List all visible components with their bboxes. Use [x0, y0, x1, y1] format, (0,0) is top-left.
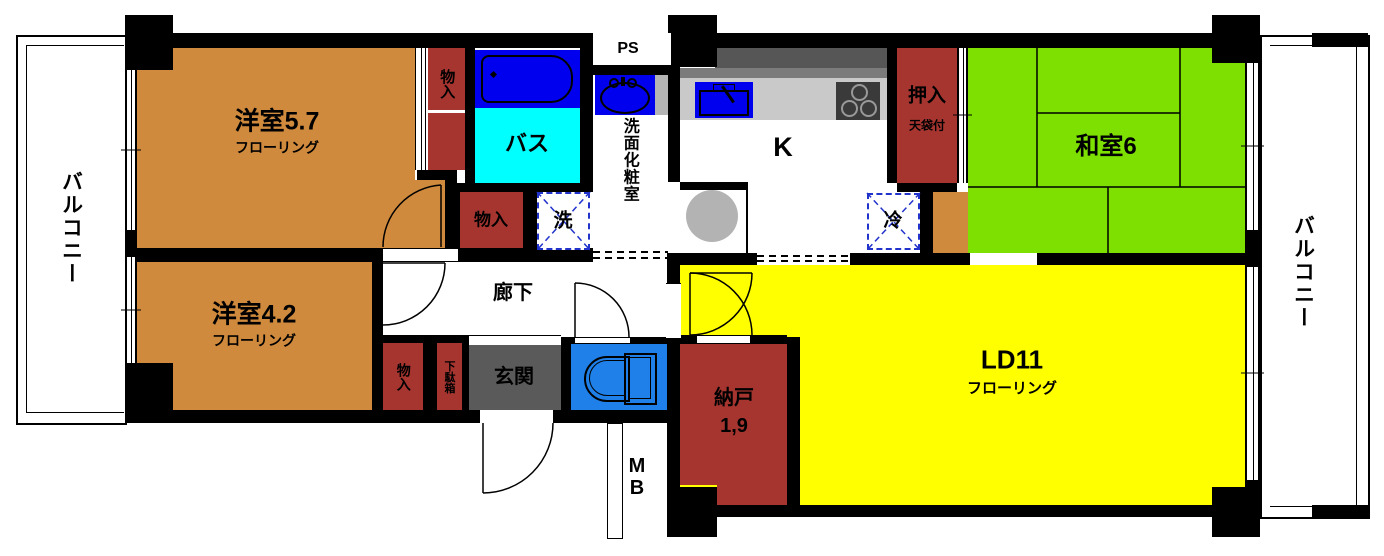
pipe-space-label: PS: [617, 40, 638, 58]
ld-name: LD11: [981, 346, 1043, 375]
closet-door-room57: [415, 48, 426, 170]
balcony-right-label: バルコニー: [1291, 215, 1314, 330]
toilet-icon: [571, 344, 667, 410]
oshiire-sub: 天袋付: [909, 119, 945, 132]
washitsu-name: 和室6: [1075, 134, 1136, 160]
bath-label: バス: [505, 132, 549, 156]
door-opening-room57: [445, 249, 458, 261]
genkan-step: [469, 335, 561, 345]
window-room42: [125, 257, 137, 363]
door-symbol-hall-ld: [666, 283, 681, 339]
wall-washroom-kitchen: [668, 48, 680, 182]
wall-right-seg2: [1245, 230, 1260, 267]
wall-right-seg1: [1245, 48, 1260, 63]
closet-oshiire: [897, 48, 957, 183]
oshiire-name: 押入: [908, 87, 946, 108]
wall-getabako-genkan-divider: [462, 343, 469, 410]
balcony-left-label: バルコニー: [59, 171, 82, 286]
wall-monoire-getabako-divider: [423, 343, 437, 410]
range-hood: [715, 47, 887, 68]
hallway-label: 廊下: [493, 282, 533, 304]
monoire-mid-label: 物入: [474, 212, 508, 231]
monoire-entrance-label: 物入: [395, 363, 410, 391]
washer-label: 洗: [553, 212, 572, 233]
bathtub-icon: [475, 50, 580, 108]
window-room57: [125, 70, 137, 230]
meter-box-wall: [607, 423, 623, 539]
wall-washroom-north: [590, 65, 668, 75]
wall-hall-ld-seg1: [667, 253, 680, 283]
monoire-top-label: 物入: [438, 69, 455, 99]
wall-nando-east: [787, 337, 800, 505]
wall-bath-south: [452, 183, 593, 192]
floor-plan: バルコニー バルコニー 洋室5.7 フローリング 洋室4.2 フローリング 和室…: [0, 0, 1384, 556]
basin-side-counter: [655, 75, 668, 115]
wall-hallway-north: [125, 248, 593, 262]
wall-right-seg3: [1245, 480, 1260, 490]
window-ld: [1245, 267, 1260, 480]
room42-floor: フローリング: [212, 333, 296, 348]
fridge-label: 冷: [883, 212, 902, 233]
door-arc-entrance: [483, 423, 553, 493]
wall-fridge-east: [920, 183, 933, 253]
toko-board: [933, 192, 968, 253]
wall-k-ld-seg1: [680, 253, 757, 265]
kitchen-label: K: [773, 133, 793, 163]
washbasin-icon: [595, 75, 655, 115]
room42-name: 洋室4.2: [212, 301, 297, 329]
room-nando-foot: [717, 485, 787, 506]
door-opening-toilet: [575, 338, 630, 343]
closet-monoire-top-b: [428, 113, 465, 170]
door-arc-toilet: [575, 283, 629, 337]
room-yoshitsu-5-7-ext: [415, 180, 445, 248]
wall-left-seg1: [125, 48, 137, 70]
door-opening-nando: [697, 336, 750, 343]
wall-bottom-west: [125, 410, 480, 423]
nando-name: 納戸: [714, 387, 754, 409]
wall-k-ld-seg2: [850, 253, 970, 265]
counter-edge: [677, 68, 887, 78]
wall-counter-east: [887, 48, 897, 183]
wall-bath-west: [465, 48, 475, 183]
wall-heater-north: [680, 182, 748, 190]
nando-size: 1,9: [720, 415, 748, 437]
stove-icon: [836, 82, 880, 120]
door-opening-room42: [383, 249, 445, 261]
wall-genkan-toilet-divider: [561, 337, 571, 411]
fusuma-oshiire: [957, 48, 968, 183]
wall-hall-ld-seg2: [667, 337, 680, 537]
ld-floor: フローリング: [967, 381, 1057, 398]
wall-bottom-center: [553, 410, 680, 423]
kitchen-sink-icon: [695, 82, 753, 118]
wall-monoire-entrance-north: [383, 335, 469, 343]
water-heater-icon: [686, 190, 738, 242]
wall-hallway-west: [372, 248, 383, 412]
balcony-right-cap-bottom: [1312, 505, 1368, 519]
wall-washitsu-ld: [1037, 253, 1245, 265]
wall-bottom-ld: [680, 505, 1245, 517]
getabako-label: 下駄箱: [443, 361, 455, 394]
wall-monoire-mid-west: [452, 192, 460, 250]
balcony-right-cap-top: [1312, 33, 1368, 47]
wall-heater-east-line: [746, 185, 748, 253]
window-washitsu: [1245, 63, 1260, 230]
wall-top-right: [668, 33, 1260, 48]
washroom-label: 洗面化粧室: [620, 118, 638, 203]
meter-box-label: MB: [626, 455, 648, 499]
room57-floor: フローリング: [235, 140, 319, 155]
door-arc-room42: [383, 263, 445, 325]
wall-monoire-washer-divider: [523, 192, 537, 250]
room57-name: 洋室5.7: [235, 108, 320, 136]
entrance-label: 玄関: [494, 366, 534, 388]
wall-top-left: [125, 33, 590, 48]
